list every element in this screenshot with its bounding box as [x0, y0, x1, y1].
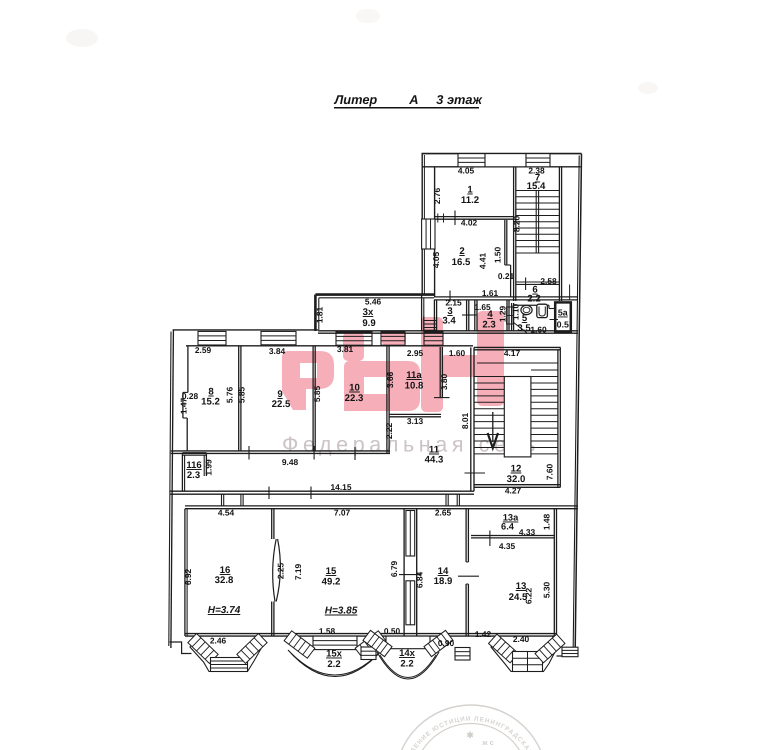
svg-text:3.81: 3.81	[337, 344, 354, 354]
svg-text:5.76: 5.76	[225, 387, 235, 404]
svg-text:4.33: 4.33	[519, 527, 536, 537]
svg-text:ж с: ж с	[481, 738, 494, 747]
svg-text:13: 13	[516, 581, 527, 592]
svg-text:15.4: 15.4	[527, 181, 546, 192]
svg-text:15х: 15х	[326, 649, 343, 660]
svg-text:32.8: 32.8	[215, 575, 234, 586]
svg-text:14х: 14х	[399, 648, 416, 659]
svg-text:2.58: 2.58	[540, 276, 557, 286]
svg-text:5.46: 5.46	[365, 297, 382, 307]
svg-text:2.95: 2.95	[407, 348, 424, 358]
svg-text:1.81: 1.81	[315, 307, 325, 324]
svg-text:✱: ✱	[466, 730, 473, 740]
svg-text:6.84: 6.84	[415, 572, 425, 589]
svg-text:3.5: 3.5	[517, 323, 531, 334]
svg-text:2.65: 2.65	[435, 508, 452, 518]
svg-text:15: 15	[326, 566, 337, 577]
svg-text:6.4: 6.4	[501, 521, 515, 531]
svg-text:15.2: 15.2	[201, 397, 220, 408]
svg-text:24.5: 24.5	[509, 592, 528, 603]
svg-text:3.13: 3.13	[407, 416, 424, 426]
svg-text:5а: 5а	[558, 308, 568, 318]
svg-text:7.60: 7.60	[545, 464, 555, 481]
svg-text:2.59: 2.59	[195, 345, 212, 355]
svg-text:1.47: 1.47	[179, 398, 189, 415]
svg-text:4.35: 4.35	[499, 541, 516, 551]
svg-text:9.48: 9.48	[282, 457, 299, 467]
svg-text:11.2: 11.2	[461, 195, 479, 206]
svg-text:1: 1	[467, 185, 473, 196]
svg-text:1.50: 1.50	[493, 247, 503, 264]
svg-text:10.8: 10.8	[405, 381, 424, 392]
svg-text:2.2: 2.2	[527, 294, 540, 305]
svg-text:14.15: 14.15	[331, 482, 352, 492]
svg-text:4.05: 4.05	[458, 165, 475, 175]
svg-text:1.99: 1.99	[204, 459, 214, 476]
svg-text:3x: 3x	[363, 307, 374, 318]
svg-text:2.3: 2.3	[187, 470, 200, 481]
svg-text:3.66: 3.66	[385, 372, 395, 389]
svg-text:16.5: 16.5	[452, 257, 471, 268]
svg-text:5.85: 5.85	[237, 387, 247, 404]
svg-text:1.60: 1.60	[449, 348, 466, 358]
svg-text:8.01: 8.01	[460, 413, 470, 430]
svg-text:8.20: 8.20	[512, 216, 522, 233]
svg-text:3.4: 3.4	[442, 316, 456, 327]
svg-text:2.22: 2.22	[384, 423, 394, 440]
svg-text:4.02: 4.02	[461, 218, 478, 228]
svg-text:1.48: 1.48	[542, 514, 552, 531]
svg-text:7.19: 7.19	[293, 564, 303, 581]
svg-text:4.05: 4.05	[431, 252, 441, 269]
svg-text:7.07: 7.07	[334, 508, 351, 518]
svg-text:4.41: 4.41	[478, 253, 488, 270]
svg-text:1.61: 1.61	[482, 288, 499, 298]
svg-text:0.50: 0.50	[384, 626, 401, 636]
svg-text:H=3.74: H=3.74	[208, 605, 241, 616]
svg-text:2.25: 2.25	[276, 563, 286, 580]
svg-text:1.58: 1.58	[319, 626, 336, 636]
svg-text:2.2: 2.2	[327, 659, 340, 670]
svg-text:2.3: 2.3	[482, 320, 495, 331]
svg-text:22.3: 22.3	[345, 393, 364, 404]
svg-text:1.29: 1.29	[498, 306, 508, 323]
svg-text:0.21: 0.21	[498, 271, 515, 281]
svg-text:10: 10	[349, 383, 360, 394]
svg-text:32.0: 32.0	[507, 474, 526, 485]
svg-text:Литер А 3 этаж: Литер А 3 этаж	[334, 92, 483, 107]
svg-text:2.46: 2.46	[210, 636, 227, 646]
svg-text:1.10: 1.10	[511, 304, 521, 321]
svg-text:3.80: 3.80	[439, 374, 449, 391]
svg-text:6.79: 6.79	[389, 561, 399, 578]
svg-text:2.76: 2.76	[432, 188, 442, 205]
svg-text:18.9: 18.9	[434, 576, 453, 587]
svg-text:44.3: 44.3	[425, 455, 444, 466]
svg-text:4.54: 4.54	[218, 508, 235, 518]
svg-text:0.90: 0.90	[438, 638, 455, 648]
svg-text:6.92: 6.92	[183, 569, 193, 586]
svg-text:5.85: 5.85	[312, 386, 322, 403]
svg-text:9.9: 9.9	[362, 318, 375, 329]
svg-text:3.84: 3.84	[269, 346, 286, 356]
svg-text:2: 2	[459, 246, 464, 257]
svg-text:5.30: 5.30	[542, 582, 552, 599]
svg-text:2.2: 2.2	[400, 659, 413, 670]
svg-text:4.17: 4.17	[504, 348, 521, 358]
svg-text:22.5: 22.5	[272, 399, 291, 410]
svg-text:1.60: 1.60	[530, 325, 547, 335]
svg-text:1.42: 1.42	[475, 629, 492, 639]
svg-text:4.27: 4.27	[505, 486, 522, 496]
svg-text:0.5: 0.5	[557, 320, 569, 330]
svg-text:H=3.85: H=3.85	[325, 606, 358, 617]
svg-text:4: 4	[487, 309, 493, 320]
svg-text:11а: 11а	[406, 370, 422, 381]
svg-text:2.40: 2.40	[513, 634, 530, 644]
svg-text:49.2: 49.2	[322, 577, 341, 588]
